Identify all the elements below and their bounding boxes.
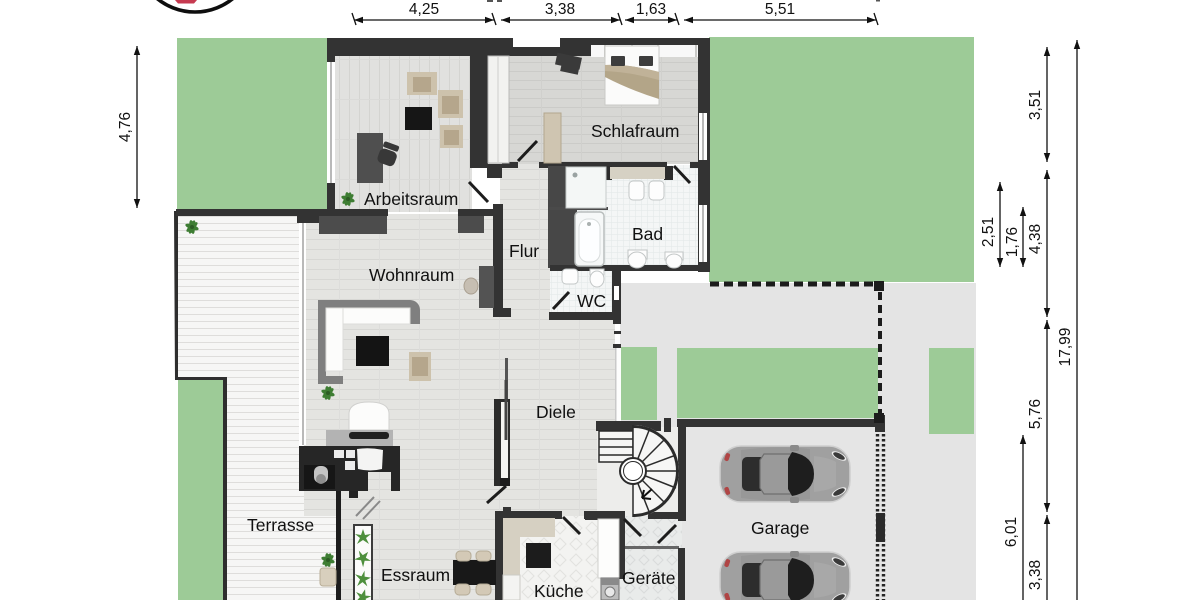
svg-text:Arbeitsraum: Arbeitsraum xyxy=(364,189,458,209)
svg-text:Flur: Flur xyxy=(509,241,539,261)
svg-text:WC: WC xyxy=(577,291,606,311)
svg-text:Essraum: Essraum xyxy=(381,565,450,585)
svg-text:Küche: Küche xyxy=(534,581,584,600)
svg-text:4,38: 4,38 xyxy=(1027,224,1044,254)
svg-text:1,76: 1,76 xyxy=(1004,227,1021,257)
svg-text:Garage: Garage xyxy=(751,518,809,538)
svg-text:1,63: 1,63 xyxy=(636,1,666,18)
svg-text:2,51: 2,51 xyxy=(980,217,997,247)
svg-text:5,51: 5,51 xyxy=(765,1,795,18)
svg-text:5,76: 5,76 xyxy=(1027,399,1044,429)
svg-text:Wohnraum: Wohnraum xyxy=(369,265,454,285)
svg-text:Schlafraum: Schlafraum xyxy=(591,121,680,141)
svg-text:Bad: Bad xyxy=(632,224,663,244)
svg-text:6,01: 6,01 xyxy=(1003,517,1020,547)
svg-text:4,25: 4,25 xyxy=(409,1,439,18)
svg-text:3,38: 3,38 xyxy=(1027,560,1044,590)
svg-text:3,38: 3,38 xyxy=(545,1,575,18)
svg-text:17,99: 17,99 xyxy=(1057,328,1074,367)
svg-text:3,51: 3,51 xyxy=(1027,90,1044,120)
svg-text:Diele: Diele xyxy=(536,402,576,422)
svg-text:Terrasse: Terrasse xyxy=(247,515,314,535)
svg-text:4,76: 4,76 xyxy=(117,112,134,142)
svg-text:Geräte: Geräte xyxy=(622,568,676,588)
